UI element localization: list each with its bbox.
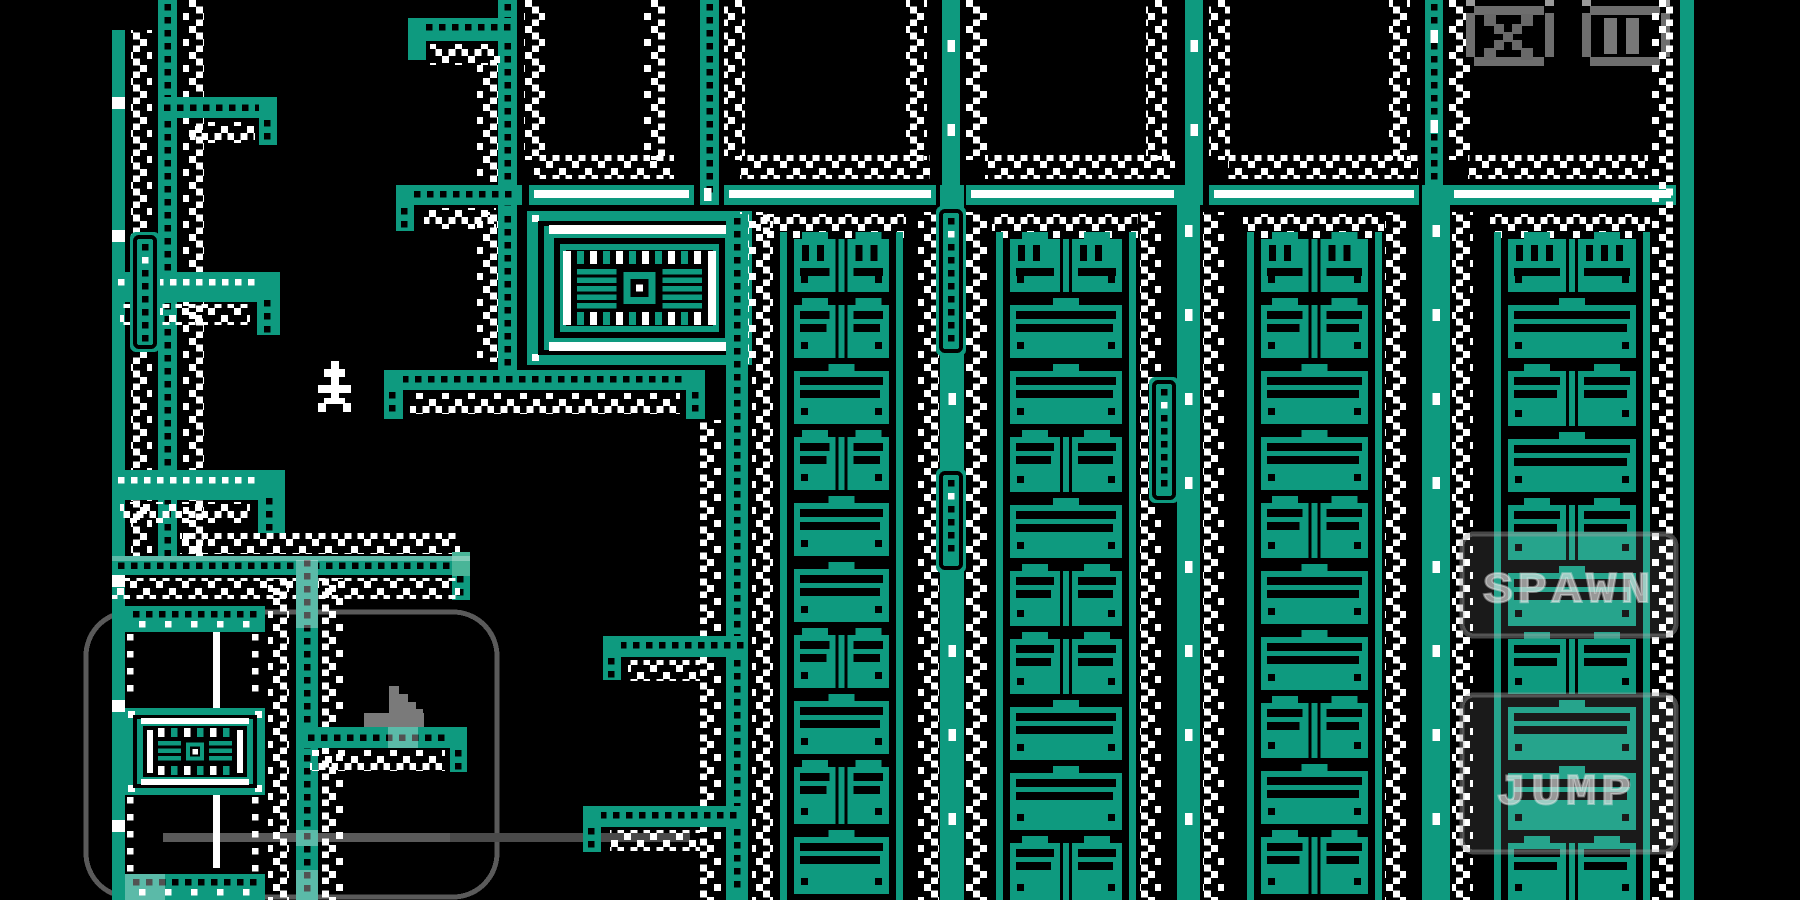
svg-text:SPAWN: SPAWN — [1483, 566, 1655, 616]
svg-text:JUMP: JUMP — [1496, 768, 1636, 818]
